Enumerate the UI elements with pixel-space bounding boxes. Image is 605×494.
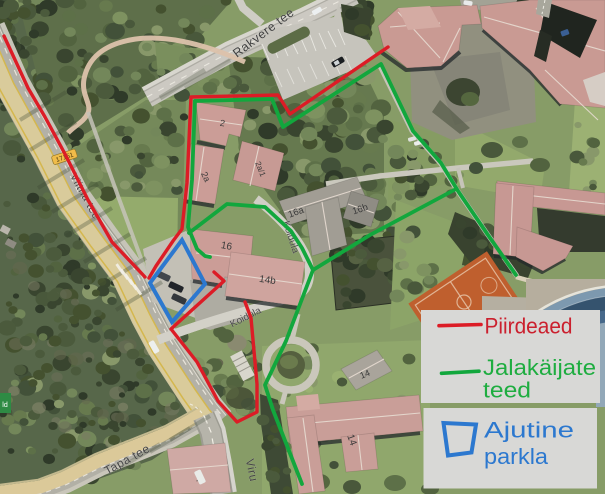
svg-text:Ajutine: Ajutine xyxy=(484,418,574,443)
svg-text:Piirdeaed: Piirdeaed xyxy=(485,314,573,339)
svg-text:ld: ld xyxy=(2,402,8,409)
svg-text:parkla: parkla xyxy=(484,444,549,469)
svg-text:teed: teed xyxy=(483,378,531,403)
svg-text:Jalakäijate: Jalakäijate xyxy=(483,355,596,380)
